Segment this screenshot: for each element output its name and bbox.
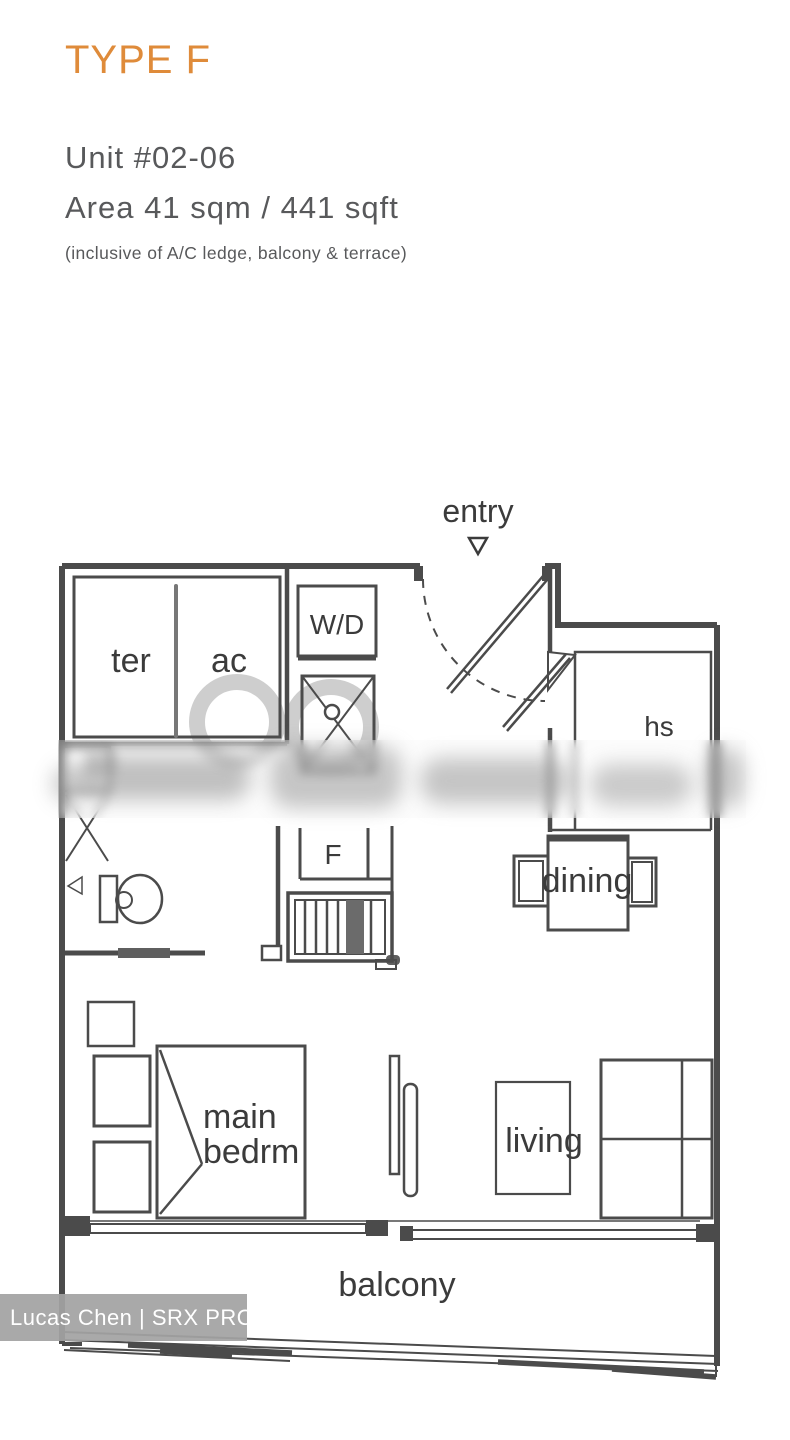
- floor-plan: entry ter ac W/D hs F dining main bedrm …: [0, 0, 790, 1440]
- household-shelter-room: [548, 652, 711, 830]
- bedside-cabinet: [88, 1002, 134, 1046]
- living-label: living: [505, 1122, 582, 1160]
- counter-grille-dark-bar: [346, 900, 364, 954]
- sliding-stub-mid2: [400, 1226, 413, 1241]
- ac-label: ac: [211, 642, 247, 680]
- sofa-dividers: [601, 1060, 712, 1218]
- fridge-label: F: [324, 839, 341, 870]
- dining-label: dining: [542, 862, 633, 900]
- entry-label: entry: [442, 493, 513, 529]
- kitchen-wall-foot: [262, 946, 281, 960]
- tv-screen: [404, 1084, 417, 1196]
- hs-room-walls: [548, 652, 711, 830]
- sliding-panel-right: [404, 1230, 700, 1239]
- hs-door: [503, 652, 575, 731]
- entry-door-post-right: [542, 566, 551, 581]
- entry-door: [414, 566, 551, 701]
- entry-arrow-icon: [469, 538, 487, 554]
- balcony-label: balcony: [338, 1266, 455, 1304]
- bath-wall-vent: [118, 948, 170, 958]
- sliding-stub-left: [62, 1216, 90, 1236]
- tv-console: [390, 1056, 417, 1196]
- fridge-recess: [300, 828, 392, 879]
- shower-drain: [325, 705, 339, 719]
- watermark-ring: [197, 682, 277, 762]
- sliding-stub-right: [696, 1224, 718, 1242]
- entry-door-leaf: [447, 576, 547, 693]
- bath-door-cross: [66, 795, 108, 861]
- entry-door-swing-arc: [423, 579, 545, 701]
- counter-grille-outer: [288, 893, 392, 961]
- kitchen: [288, 828, 396, 969]
- vanity-rails: [86, 756, 118, 770]
- toilet-tank: [100, 876, 117, 922]
- credit-watermark: Lucas Chen | SRX PROPERTY: [0, 1294, 247, 1341]
- bed-fold: [160, 1050, 202, 1214]
- main-bedrm-label-line2: bedrm: [203, 1133, 299, 1171]
- sliding-stub-mid1: [366, 1220, 388, 1236]
- floorplan-page: TYPE F Unit #02-06 Area 41 sqm / 441 sqf…: [0, 0, 790, 1440]
- dining-chair-right-inner: [632, 862, 652, 902]
- entry-door-post-left: [414, 566, 423, 581]
- pillow-bottom: [94, 1142, 150, 1212]
- dining-chair-left-inner: [519, 861, 543, 901]
- watermark-rings: [197, 682, 371, 767]
- tv-wall: [390, 1056, 399, 1174]
- pillow-top: [94, 1056, 150, 1126]
- vanity-counter: [64, 747, 110, 791]
- terrace-ac-ledge: [74, 577, 280, 737]
- toilet-bowl: [118, 875, 162, 923]
- main-bedrm-label-line1: main: [203, 1098, 277, 1136]
- sliding-panel-left: [90, 1224, 366, 1233]
- sliding-doors: [62, 1216, 718, 1242]
- outer-walls: [62, 566, 717, 1366]
- hs-label: hs: [644, 711, 674, 742]
- bathroom: [64, 747, 162, 923]
- bath-door-marker: [68, 877, 82, 894]
- top-right-step-wall: [545, 566, 717, 625]
- wd-label: W/D: [310, 609, 364, 640]
- terrace-label: ter: [111, 642, 151, 680]
